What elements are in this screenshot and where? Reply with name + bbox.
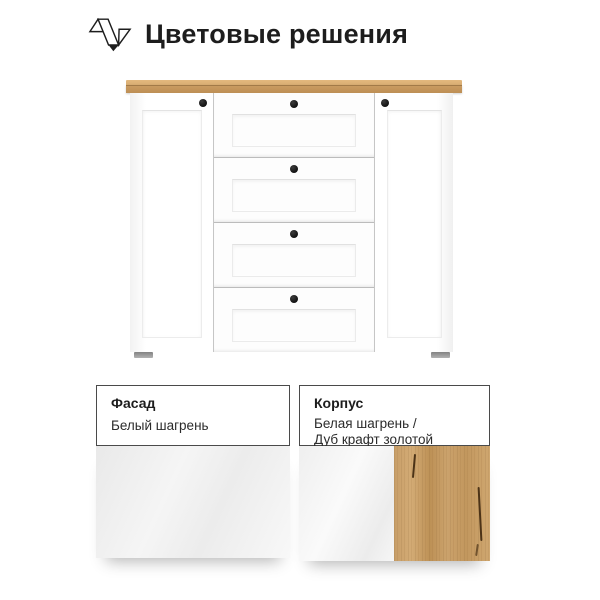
wood-crack xyxy=(412,454,416,478)
wood-crack xyxy=(475,544,479,556)
section-title: Цветовые решения xyxy=(145,19,408,50)
card-korpus-value: Белая шагрень / Дуб крафт золотой xyxy=(314,416,479,448)
dresser-right-door xyxy=(374,93,453,352)
dresser-foot xyxy=(134,352,153,358)
drawer-2 xyxy=(214,158,374,223)
card-facade-header: Фасад Белый шагрень xyxy=(96,385,290,446)
door-inset-panel xyxy=(142,110,202,338)
drawer-knob xyxy=(290,295,298,303)
drawer-knob xyxy=(290,230,298,238)
swatch-oak-craft-gold xyxy=(394,446,490,561)
page: Цветовые решения xyxy=(0,0,600,600)
dresser-left-door xyxy=(130,93,214,352)
swatch-pair xyxy=(299,446,490,561)
drawer-inset-panel xyxy=(232,114,356,147)
door-knob xyxy=(381,99,389,107)
dresser-foot xyxy=(431,352,450,358)
door-inset-panel xyxy=(387,110,442,338)
dresser-top-edge xyxy=(126,85,462,93)
card-korpus-title: Корпус xyxy=(314,395,479,411)
door-knob xyxy=(199,99,207,107)
brand-zigzag-logo-icon xyxy=(88,16,132,53)
drawer-1 xyxy=(214,93,374,158)
dresser-body xyxy=(130,93,453,352)
card-facade-value: Белый шагрень xyxy=(111,418,279,434)
drawer-inset-panel xyxy=(232,309,356,342)
dresser-drawer-stack xyxy=(214,93,374,352)
drawer-3 xyxy=(214,223,374,288)
drawer-inset-panel xyxy=(232,244,356,277)
card-korpus-value-line1: Белая шагрень / xyxy=(314,416,479,432)
drawer-knob xyxy=(290,165,298,173)
drawer-4 xyxy=(214,288,374,352)
wood-crack xyxy=(478,487,483,541)
drawer-inset-panel xyxy=(232,179,356,212)
swatch-white-shagreen xyxy=(299,446,394,561)
section-header: Цветовые решения xyxy=(88,16,408,53)
card-facade-title: Фасад xyxy=(111,395,279,411)
card-korpus-header: Корпус Белая шагрень / Дуб крафт золотой xyxy=(299,385,490,446)
swatch-white-shagreen xyxy=(96,446,290,558)
drawer-knob xyxy=(290,100,298,108)
